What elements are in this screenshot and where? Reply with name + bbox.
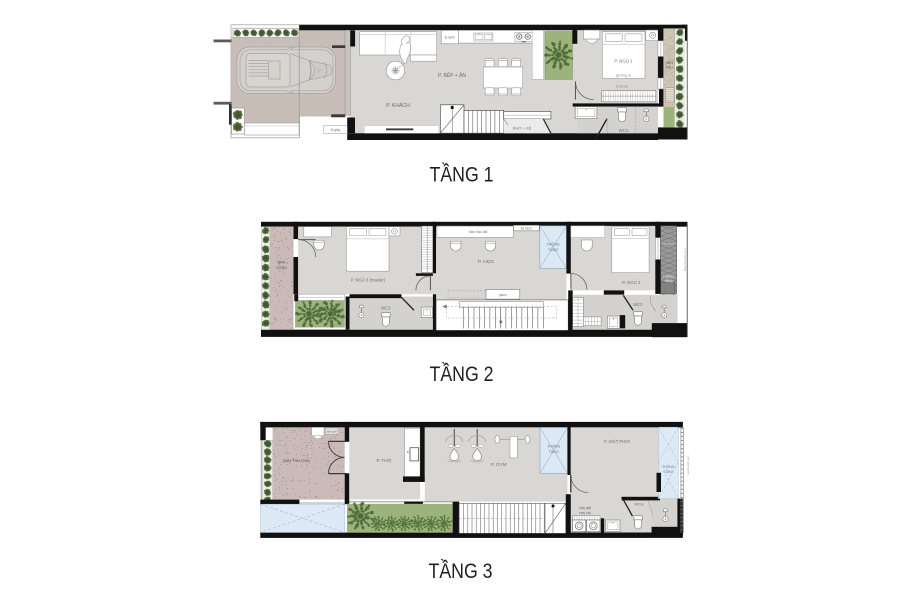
svg-text:tủ đo áo: tủ đo áo [616,85,628,89]
svg-text:P. NGỦ 3 (master): P. NGỦ 3 (master) [351,277,386,282]
svg-text:P. NGỦ 1: P. NGỦ 1 [614,59,633,64]
svg-text:TẦNG 1: TẦNG 1 [430,162,494,187]
svg-text:WC2: WC2 [633,302,643,307]
svg-text:THÔNG: THÔNG [546,242,559,247]
svg-text:TẦNG: TẦNG [664,279,673,283]
svg-text:lam thép: lam thép [663,242,675,246]
svg-text:SAU: SAU [666,66,674,70]
svg-text:WC1: WC1 [619,128,629,133]
svg-text:TẦNG 2: TẦNG 2 [430,361,494,386]
svg-text:P. GYM: P. GYM [491,462,507,467]
svg-text:KHO + KỆ: KHO + KỆ [513,126,532,131]
svg-text:THÔNG: THÔNG [662,464,675,469]
svg-text:SÂN THƯỢNG: SÂN THƯỢNG [283,458,310,463]
svg-text:BAN: BAN [278,261,286,265]
svg-text:bàn học dài: bàn học dài [469,230,488,234]
svg-text:giường cũ: giường cũ [616,74,632,78]
svg-text:WC4: WC4 [635,502,645,507]
svg-text:vị trí giàn phơi: vị trí giàn phơi [687,456,691,475]
svg-text:máy giặt: máy giặt [579,506,591,510]
svg-text:piano: piano [499,293,507,297]
svg-text:P. BẾP + ĂN: P. BẾP + ĂN [438,72,466,79]
svg-text:P. GIẶT PHƠI: P. GIẶT PHƠI [604,439,630,444]
svg-text:máy sấy: máy sấy [579,511,591,515]
svg-text:THÔNG: THÔNG [663,274,675,279]
svg-text:kệ sách: kệ sách [521,227,532,231]
svg-text:P. NGỦ 2: P. NGỦ 2 [622,280,641,285]
svg-text:TẦNG 3: TẦNG 3 [429,558,493,583]
svg-text:bàn ghế: bàn ghế [327,429,338,433]
svg-text:TẦNG: TẦNG [549,450,559,454]
svg-text:WC3: WC3 [381,305,391,310]
svg-text:P. KHÁCH: P. KHÁCH [386,102,410,109]
svg-text:TẦNG: TẦNG [664,470,674,474]
svg-text:SÂN: SÂN [666,61,674,65]
svg-text:TẦNG: TẦNG [548,248,558,252]
svg-text:CÔNG: CÔNG [276,265,287,270]
svg-text:tủ lạnh: tủ lạnh [445,36,455,40]
svg-text:P. THỜ: P. THỜ [376,457,391,463]
svg-text:THÔNG: THÔNG [547,444,560,449]
svg-text:tủ giày: tủ giày [331,128,341,132]
svg-text:P. HỌC: P. HỌC [478,259,495,265]
